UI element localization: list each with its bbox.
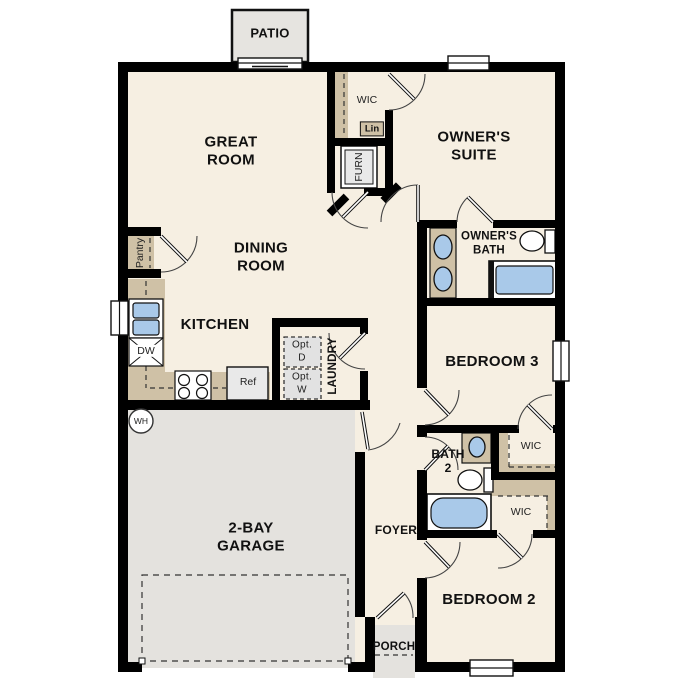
room-label-furnace: FURN	[353, 152, 365, 181]
fixture-label-refrigerator: Ref	[240, 376, 256, 388]
room-label-great-room: GREAT ROOM	[205, 133, 258, 168]
room-label-dining-room: DINING ROOM	[234, 239, 288, 274]
room-label-patio: PATIO	[250, 25, 289, 40]
fixture-label-optional-washer: Opt. W	[292, 372, 312, 397]
room-label-wic-bedroom2: WIC	[511, 506, 531, 518]
room-label-garage: 2-BAY GARAGE	[217, 519, 285, 554]
room-label-owners-wic: WIC	[357, 94, 377, 106]
floor-plan: PATIO GREAT ROOM WIC Lin FURN OWNER'S SU…	[0, 0, 687, 687]
room-label-owners-bath: OWNER'S BATH	[461, 230, 517, 257]
room-label-bedroom3: BEDROOM 3	[445, 353, 539, 371]
room-label-linen: Lin	[360, 121, 384, 136]
fixture-label-water-heater: WH	[134, 416, 148, 426]
room-label-bedroom2: BEDROOM 2	[442, 591, 536, 609]
room-label-foyer: FOYER	[375, 523, 417, 537]
fixture-label-dishwasher: DW	[136, 345, 156, 357]
room-label-kitchen: KITCHEN	[181, 316, 250, 334]
room-label-laundry: LAUNDRY	[327, 337, 341, 394]
room-label-porch: PORCH	[373, 641, 416, 655]
room-label-owners-suite: OWNER'S SUITE	[437, 128, 510, 163]
room-label-wic-bedroom3: WIC	[521, 440, 541, 452]
fixture-label-optional-dryer: Opt. D	[292, 340, 312, 365]
room-label-bath2: BATH 2	[431, 447, 464, 475]
room-label-pantry: Pantry	[134, 238, 146, 268]
floor-plan-graphic	[0, 0, 687, 687]
